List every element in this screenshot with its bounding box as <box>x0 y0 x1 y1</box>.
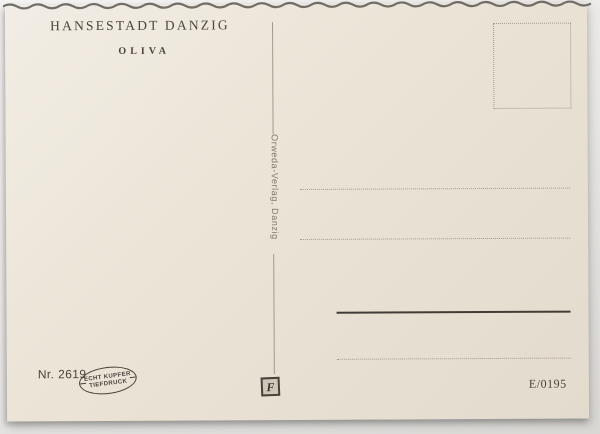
publisher-logo-letter: F <box>266 380 274 392</box>
address-line-4 <box>337 358 571 360</box>
address-line-1 <box>300 188 570 190</box>
publisher-imprint: Orweda-Verlag, Danzig <box>268 134 282 258</box>
center-divider-bottom <box>273 254 275 374</box>
stamp-box <box>493 23 571 109</box>
edition-code: E/0195 <box>529 377 567 392</box>
deckle-edge <box>3 0 593 13</box>
scan-background: HANSESTADT DANZIG OLIVA Orweda-Verlag, D… <box>0 0 600 434</box>
center-divider-top <box>272 22 274 134</box>
publisher-logo-icon: F <box>261 377 281 397</box>
postcard-back: HANSESTADT DANZIG OLIVA Orweda-Verlag, D… <box>5 2 589 421</box>
address-line-2 <box>300 238 570 240</box>
print-quality-stamp: ECHT KUPFER TIEFDRUCK <box>77 363 138 397</box>
postcard-subtitle: OLIVA <box>29 45 259 57</box>
postcard-title: HANSESTADT DANZIG <box>25 17 255 34</box>
address-line-3-solid <box>337 311 571 314</box>
